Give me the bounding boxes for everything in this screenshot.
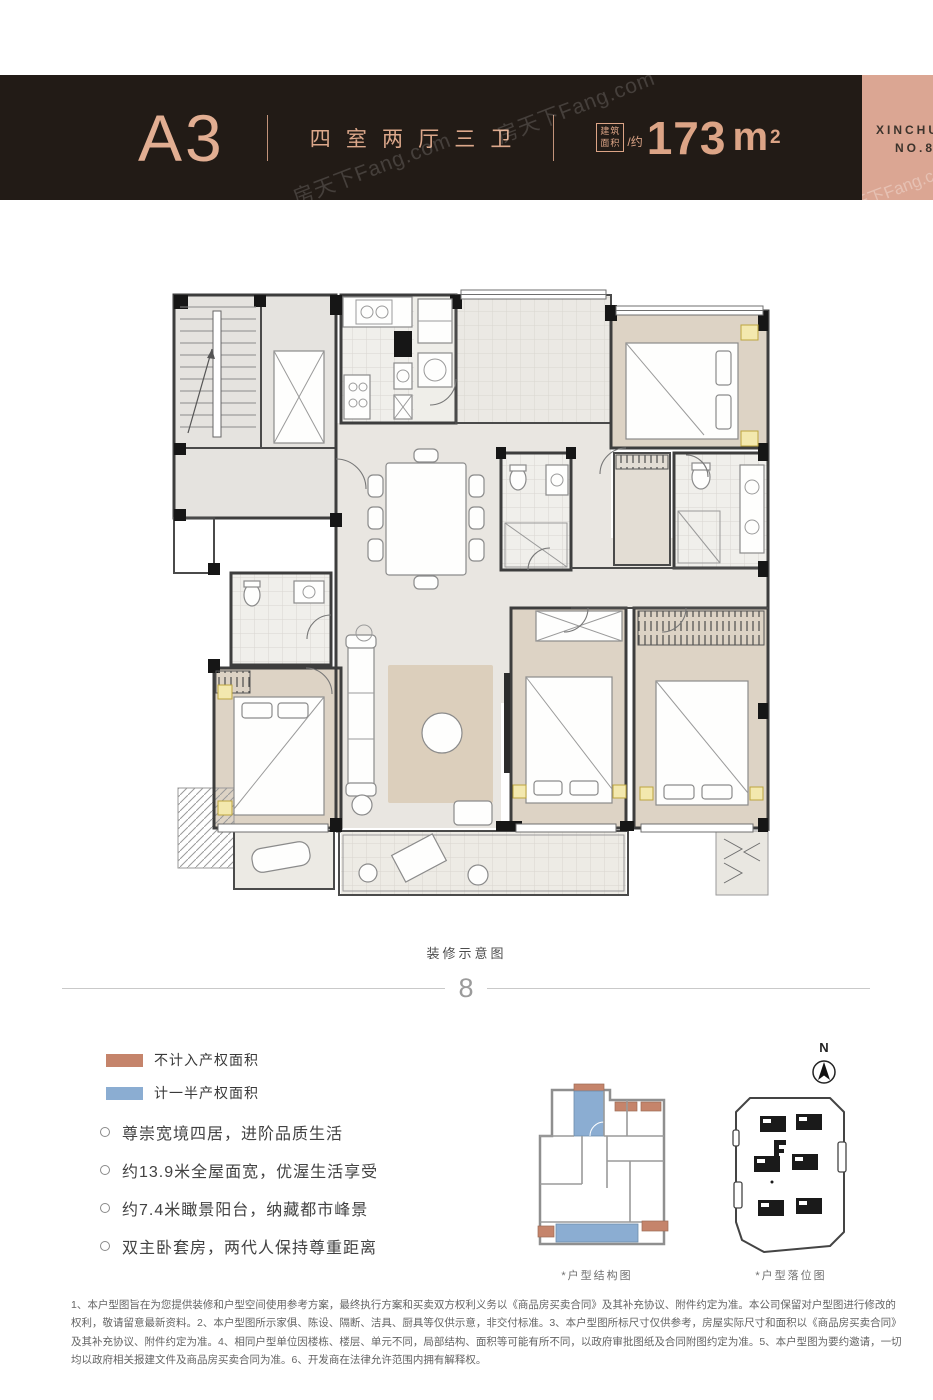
pantry [418, 299, 452, 387]
header: A3 四室两厅三卫 建筑 面积 /约 173 m 2 房天下Fang.com 房… [0, 75, 933, 200]
position-diagram-label: *户型落位图 [755, 1267, 826, 1283]
list-item: 约13.9米全屋面宽，优渥生活享受 [100, 1158, 378, 1182]
bedroom-right [638, 611, 764, 805]
structure-diagram-label: *户型结构图 [561, 1267, 632, 1283]
plan-caption: 装修示意图 [0, 943, 933, 962]
divider-line [62, 988, 445, 989]
header-divider [553, 115, 554, 161]
floor-plan-wrap [156, 283, 776, 908]
legend-swatch-blue [106, 1087, 143, 1100]
area-badge: 建筑 面积 [596, 123, 624, 152]
section-divider: 8 [62, 975, 870, 1002]
list-item: 双主卧套房，两代人保持尊重距离 [100, 1234, 378, 1258]
divider-ornament: 8 [445, 975, 486, 1002]
list-item: 尊崇宽境四居，进阶品质生活 [100, 1120, 378, 1144]
position-diagram-svg [730, 1094, 852, 1256]
compass-n-label: N [819, 1040, 828, 1055]
compass-icon: N [806, 1040, 842, 1090]
area-badge-bottom: 面积 [600, 138, 620, 149]
disclaimer: 1、本户型图旨在为您提供装修和户型空间使用参考方案，最终执行方案和买卖双方权利义… [71, 1296, 871, 1370]
header-pink-band: XINCHU NO.8 房天下Fang.com [862, 75, 933, 200]
disclaimer-line: 及其补充协议、附件约定为准。4、相同户型单位因楼栋、楼层、单元不同，局部结构、面… [71, 1333, 871, 1351]
area-group: 建筑 面积 /约 173 m 2 [596, 115, 780, 161]
band-line-1: XINCHU [876, 123, 933, 137]
bullet-icon [100, 1203, 110, 1213]
disclaimer-line: 1、本户型图旨在为您提供装修和户型空间使用参考方案，最终执行方案和买卖双方权利义… [71, 1296, 871, 1314]
elevator [274, 351, 324, 443]
mini-diagrams: *户型结构图 N [512, 1040, 852, 1283]
list-item: 约7.4米瞰景阳台，纳藏都市峰景 [100, 1196, 378, 1220]
area-value: 173 [647, 115, 727, 161]
highlight-text: 双主卧套房，两代人保持尊重距离 [122, 1234, 377, 1258]
legend-item: 计一半产权面积 [106, 1083, 259, 1103]
bullet-icon [100, 1127, 110, 1137]
legend-item: 不计入产权面积 [106, 1050, 259, 1070]
highlight-text: 尊崇宽境四居，进阶品质生活 [122, 1120, 343, 1144]
band-line-2: NO.8 [895, 141, 933, 155]
area-unit: m [732, 115, 768, 160]
disclaimer-line: 均以政府相关报建文件及商品房买卖合同为准。6、开发商在法律允许范围内拥有解释权。 [71, 1351, 871, 1369]
floor-plan [156, 283, 776, 903]
bullet-icon [100, 1241, 110, 1251]
structure-diagram-svg [512, 1076, 682, 1256]
page: A3 四室两厅三卫 建筑 面积 /约 173 m 2 房天下Fang.com 房… [0, 0, 933, 1400]
header-dark-panel: A3 四室两厅三卫 建筑 面积 /约 173 m 2 房天下Fang.com 房… [0, 75, 862, 200]
legend: 不计入产权面积 计一半产权面积 [106, 1050, 259, 1116]
disclaimer-line: 权利，敬请留意最新资料。2、本户型图所示家俱、陈设、隔断、洁具、厨具等仅供示意，… [71, 1314, 871, 1332]
structure-diagram: *户型结构图 [512, 1076, 682, 1283]
area-superscript: 2 [770, 127, 781, 149]
legend-swatch-salmon [106, 1054, 143, 1067]
highlight-text: 约7.4米瞰景阳台，纳藏都市峰景 [122, 1196, 368, 1220]
area-approx: /约 [627, 133, 642, 150]
area-badge-top: 建筑 [600, 126, 620, 137]
position-diagram: N [730, 1040, 852, 1283]
highlight-list: 尊崇宽境四居，进阶品质生活 约13.9米全屋面宽，优渥生活享受 约7.4米瞰景阳… [100, 1120, 378, 1272]
header-divider [267, 115, 268, 161]
divider-line [487, 988, 870, 989]
watermark: 房天下Fang.com [862, 153, 933, 200]
legend-label: 计一半产权面积 [154, 1083, 259, 1103]
layout-label: 四室两厅三卫 [310, 123, 527, 153]
bullet-icon [100, 1165, 110, 1175]
highlight-text: 约13.9米全屋面宽，优渥生活享受 [122, 1158, 378, 1182]
legend-label: 不计入产权面积 [154, 1050, 259, 1070]
unit-name: A3 [138, 105, 225, 171]
